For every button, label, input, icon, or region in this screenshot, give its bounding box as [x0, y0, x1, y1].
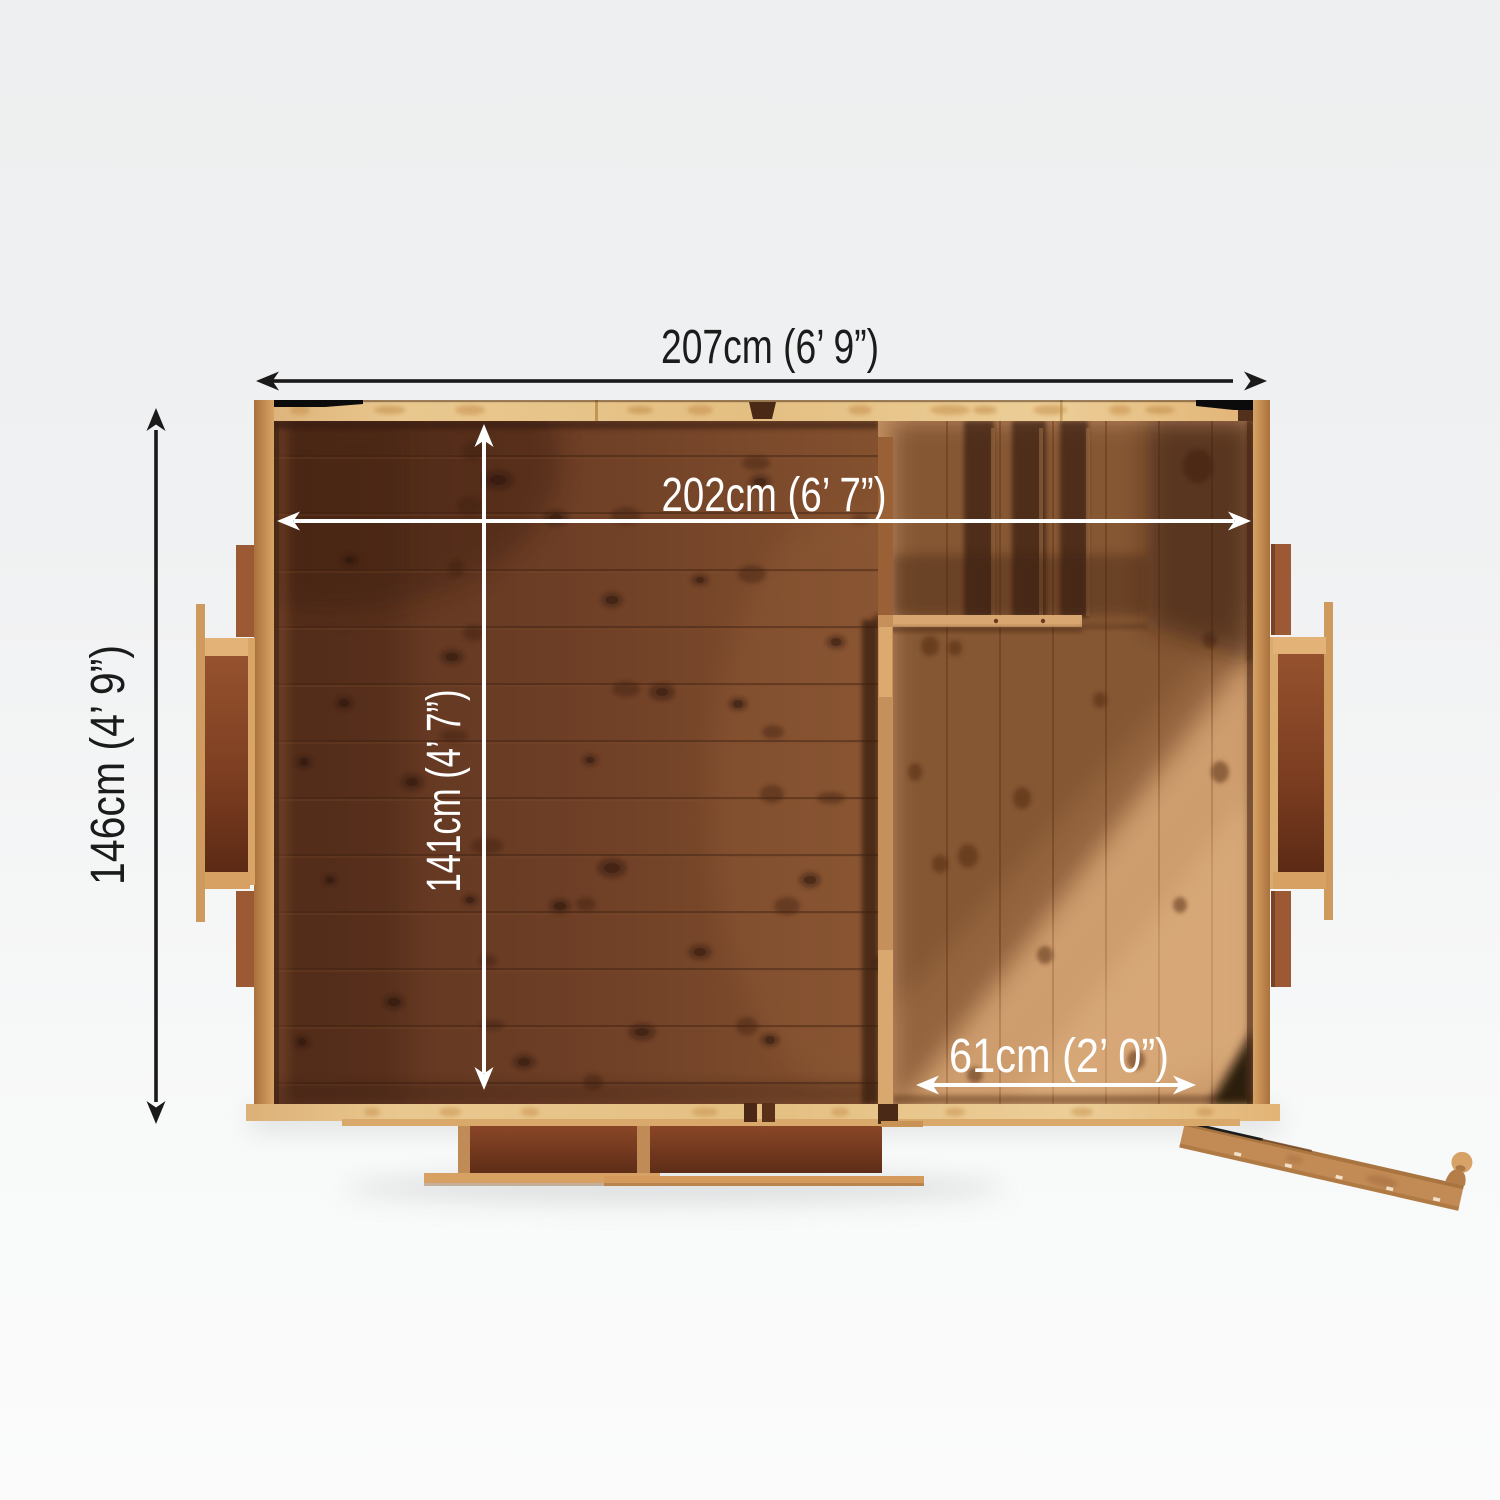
svg-text:146cm (4’ 9”): 146cm (4’ 9”) [82, 645, 135, 885]
svg-text:207cm (6’ 9”): 207cm (6’ 9”) [661, 321, 879, 374]
svg-text:202cm (6’ 7”): 202cm (6’ 7”) [662, 469, 887, 522]
svg-text:61cm (2’ 0”): 61cm (2’ 0”) [949, 1030, 1169, 1083]
svg-text:141cm (4’ 7”): 141cm (4’ 7”) [418, 690, 471, 893]
